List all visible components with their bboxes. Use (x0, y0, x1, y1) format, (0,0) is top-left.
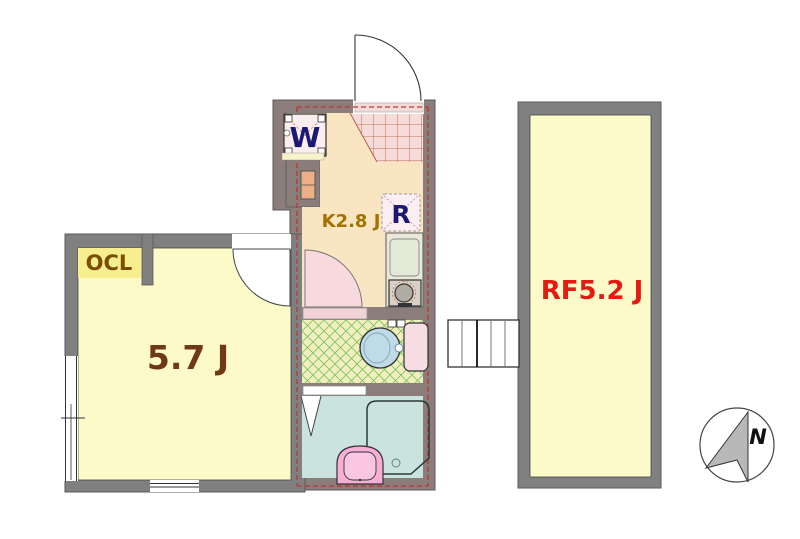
stove (389, 280, 421, 307)
bath-threshold (303, 386, 366, 395)
washbasin (337, 446, 383, 484)
entrance-door (355, 35, 421, 101)
washer-shelf (282, 153, 324, 160)
kitchen-counter (386, 233, 423, 307)
bottom-window (150, 480, 199, 492)
kitchen-label: K2.8 J (322, 211, 381, 232)
washer-label: W (290, 121, 321, 154)
closet-partition-wall (142, 234, 153, 285)
floor-plan-canvas: OCL 5.7 J K2.8 J W R RF5.2 J N (0, 0, 800, 539)
burner-icon (395, 284, 413, 302)
basin-bowl (344, 452, 376, 480)
sink (390, 239, 419, 276)
floor-plan: OCL 5.7 J K2.8 J W R RF5.2 J N (0, 0, 800, 539)
water-heater (301, 171, 315, 199)
stairs (448, 320, 519, 367)
refrigerator-label: R (391, 200, 410, 229)
north-label: N (749, 425, 767, 449)
main-door-opening (232, 234, 291, 250)
closet-label: OCL (86, 251, 133, 275)
compass: N (700, 408, 774, 482)
toilet-tank (404, 323, 428, 371)
toilet-bowl (360, 328, 400, 368)
kitchen-toilet-threshold (303, 308, 367, 319)
main-room-label: 5.7 J (147, 338, 229, 377)
loft-label: RF5.2 J (541, 276, 644, 306)
